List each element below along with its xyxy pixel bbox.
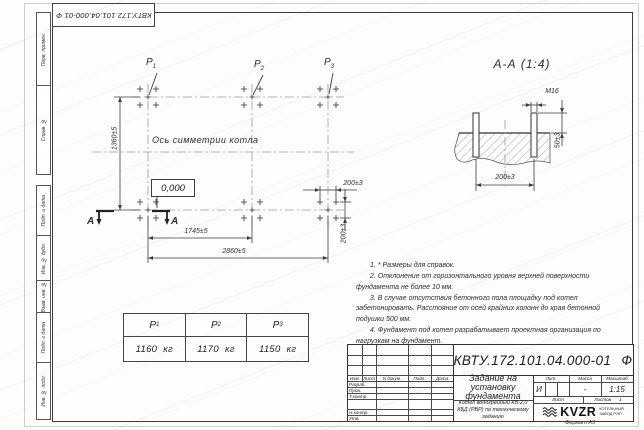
lit-label: Лит. [533,375,569,382]
rev-col-data: Дата [431,375,453,381]
sheets-label: Листов [594,397,611,402]
rev-col-docnum: N докум. [376,375,408,381]
dim-bolt-spacing-x: 200±3 [338,180,368,187]
load-table-value-row: 1160кг 1170кг 1150кг [124,337,308,361]
sheets-count: 1 [619,397,622,402]
load-value-p3: 1150кг [247,337,308,361]
note-1: 1. * Размеры для справок. [356,261,628,272]
boiler-symmetry-axis-label: Ось симметрии котла [152,135,292,145]
kvzr-logo-text: KVZR [560,405,596,419]
drawing-sheet: Перв. примен. Справ. № Подп. и дата Инв.… [0,0,644,430]
dim-2860: 2860±5 [211,248,257,255]
dim-bolt-spacing-y: 200±3 [341,219,350,249]
dim-protrusion-50: 50±3 [555,128,564,154]
title-block-doc-number: КВТУ.172.101.04.000-01Ф [453,345,633,375]
role-utv: Утв. [349,415,376,421]
bolt-group-label-p3: P3 [324,57,344,70]
section-letter-a-2: А [171,216,178,227]
note-2: 2. Отклонение от горизонтального уровня … [356,272,628,294]
drawing-subtitle: Котел водогрейный КВ-2,0 КБД (РВР) по те… [453,400,533,421]
note-3: 3. В случае отсутствия бетонного пола пл… [356,294,628,327]
section-title: А-А (1:4) [480,57,564,71]
kvzr-logo: KVZR КОТЕЛЬНЫЙ ЗАВОД РЭП [533,403,633,421]
load-table-header-row: P1 P2 P3 [124,314,308,337]
mass-value: - [569,382,601,396]
dim-section-spacing-200: 200±3 [490,174,520,181]
section-letter-a-1: А [87,216,94,227]
notes-block: 1. * Размеры для справок. 2. Отклонение … [356,261,628,348]
dim-1745: 1745±5 [173,228,219,235]
drawing-title: Задание на установку фундамента [453,375,533,400]
sheet-label: Лист [533,396,583,403]
scale-label: Масштаб [601,375,633,382]
load-table-header-p1: P1 [124,314,186,337]
load-value-p2: 1170кг [186,337,248,361]
lit-value: И [533,382,545,396]
kvzr-logo-icon [542,406,557,418]
bolt-group-label-p2: P2 [254,59,274,72]
mass-label: Масса [569,375,601,382]
load-table-header-p2: P2 [186,314,248,337]
role-tkontr: Т.контр. [349,393,376,399]
load-table: P1 P2 P3 1160кг 1170кг 1150кг [123,313,309,362]
scale-value: 1:15 [601,382,633,396]
elevation-mark: 0,000 [151,179,195,197]
format-label: Формат А3 [543,420,617,426]
title-block: Изм. Лист N докум. Подп. Дата Разраб. Пр… [347,344,634,422]
kvzr-logo-caption: КОТЕЛЬНЫЙ ЗАВОД РЭП [599,407,623,417]
dim-1360: 1360±5 [112,120,121,158]
load-value-p1: 1160кг [124,337,186,361]
load-table-header-p3: P3 [247,314,308,337]
rev-col-podp: Подп. [408,375,431,381]
sheets-cell: Листов 1 [583,396,633,403]
bolt-group-label-p1: P1 [146,57,166,70]
dim-m16: М16 [541,88,563,95]
